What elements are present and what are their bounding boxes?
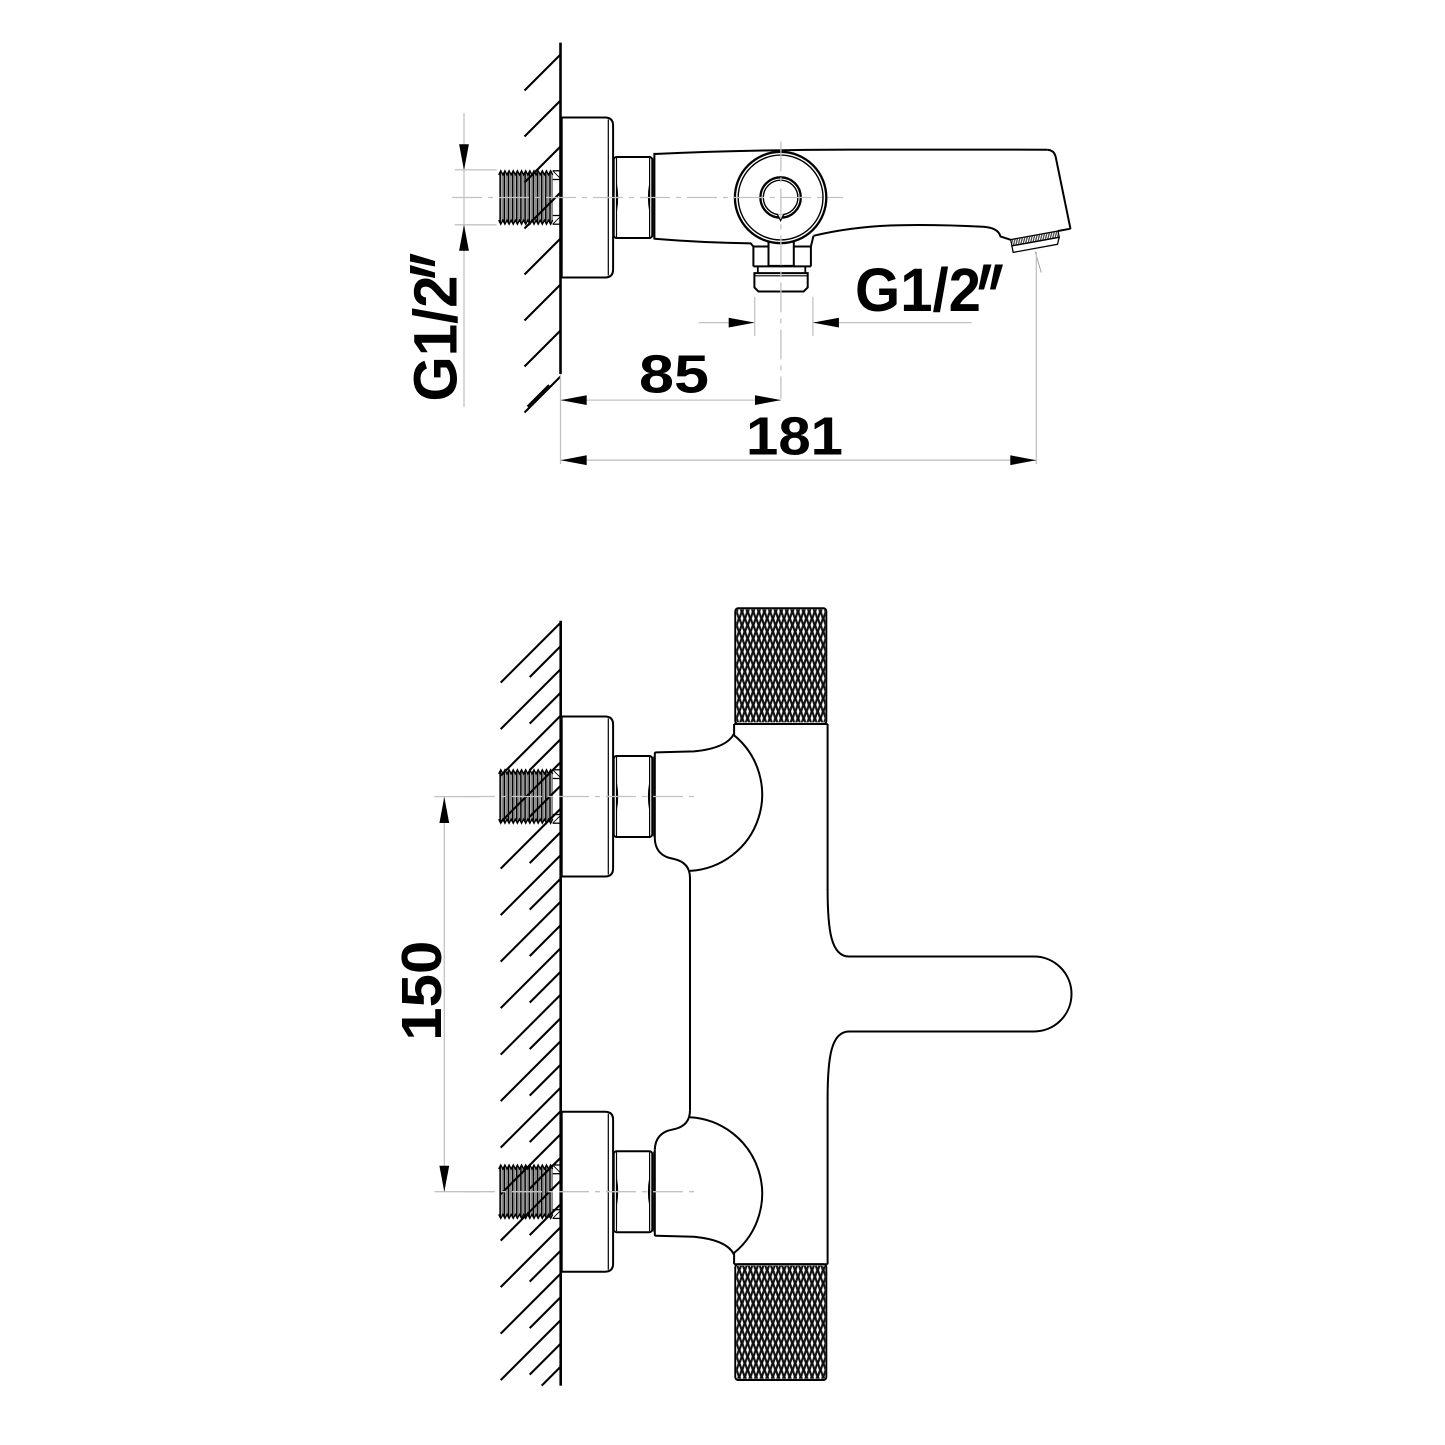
svg-text:G1/2: G1/2 — [855, 256, 981, 324]
svg-text:150: 150 — [390, 941, 454, 1041]
svg-text:181: 181 — [746, 406, 843, 466]
svg-text:G1/2: G1/2 — [402, 276, 470, 402]
svg-text:85: 85 — [639, 344, 709, 404]
